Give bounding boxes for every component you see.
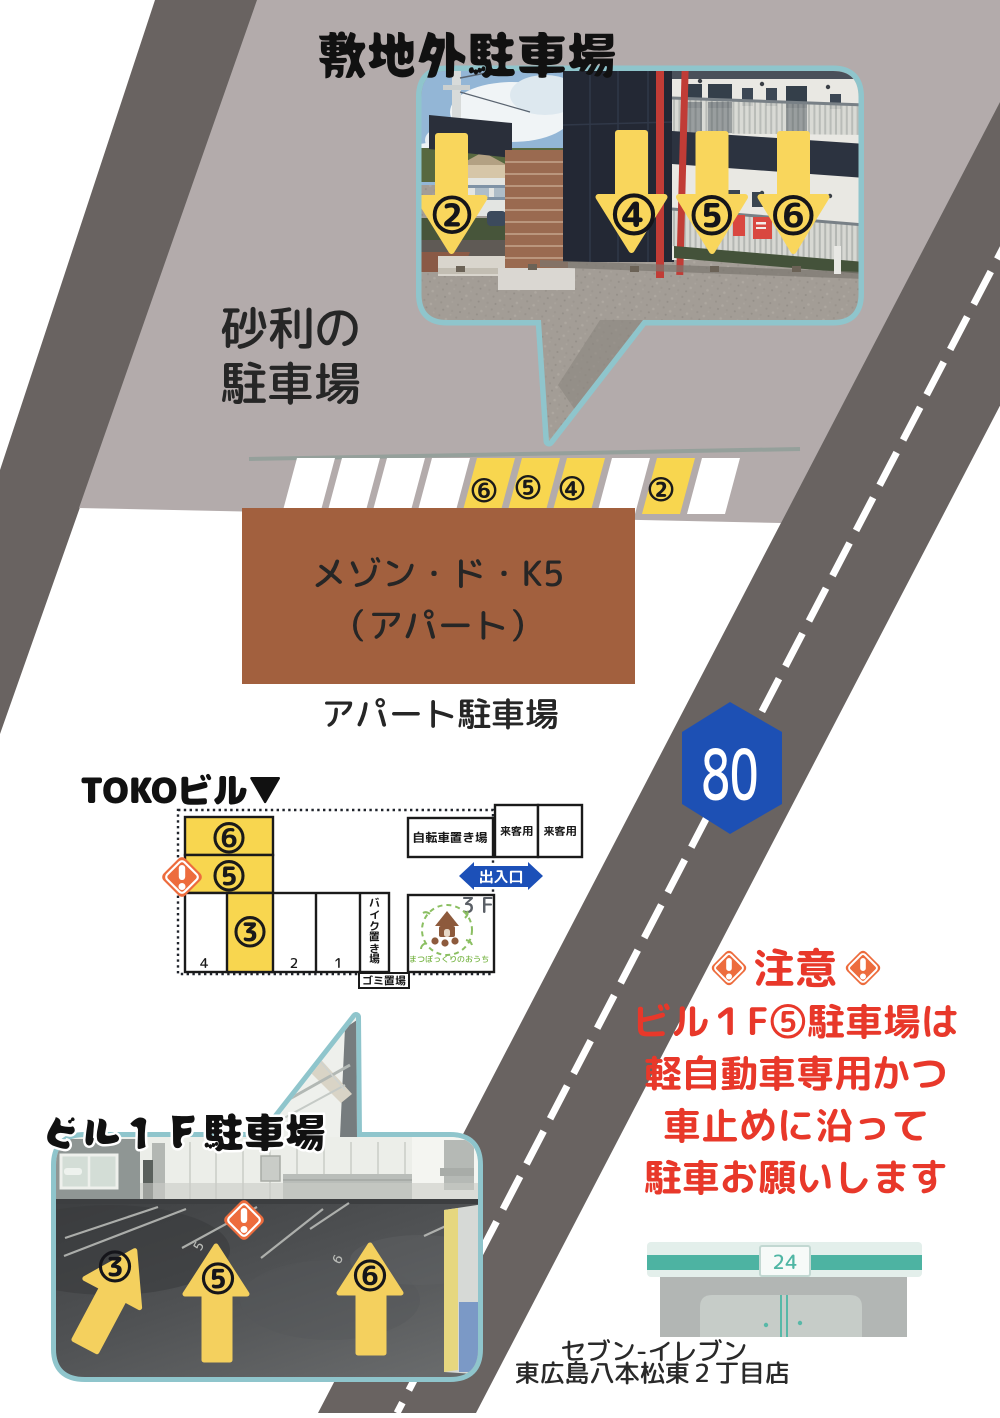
svg-text:敷地外駐車場: 敷地外駐車場 (317, 17, 617, 89)
svg-text:ゴミ置場: ゴミ置場 (362, 973, 406, 989)
svg-text:⑤: ⑤ (690, 185, 734, 246)
svg-text:軽自動車専用かつ: 軽自動車専用かつ (644, 1047, 948, 1100)
svg-text:来客用: 来客用 (500, 823, 533, 839)
svg-text:バイク置き場: バイク置き場 (367, 897, 383, 964)
svg-text:駐車お願いします: 駐車お願いします (644, 1151, 948, 1204)
svg-text:駐車場: 駐車場 (220, 350, 361, 416)
svg-text:注意: 注意 (753, 939, 837, 997)
svg-text:車止めに沿って: 車止めに沿って (663, 1099, 929, 1152)
svg-text:出入口: 出入口 (478, 866, 523, 887)
svg-text:4: 4 (200, 954, 209, 973)
svg-text:⑥: ⑥ (772, 185, 816, 246)
svg-text:アパート駐車場: アパート駐車場 (321, 689, 559, 737)
svg-text:④: ④ (611, 182, 657, 246)
svg-text:③: ③ (233, 907, 267, 955)
svg-text:⑤: ⑤ (515, 468, 542, 506)
svg-text:1: 1 (334, 954, 343, 973)
svg-text:ビル１Ｆ駐車場: ビル１Ｆ駐車場 (39, 1100, 326, 1160)
svg-text:⑥: ⑥ (471, 471, 498, 509)
svg-text:⑤: ⑤ (212, 851, 246, 899)
svg-text:まつぼっくりのおうち: まつぼっくりのおうち (409, 953, 489, 965)
svg-text:2: 2 (290, 954, 299, 973)
svg-text:東広島八本松東２丁目店: 東広島八本松東２丁目店 (514, 1355, 789, 1390)
svg-text:来客用: 来客用 (544, 823, 577, 839)
svg-text:②: ② (431, 186, 473, 244)
svg-text:ビル１F⑤駐車場は: ビル１F⑤駐車場は (633, 995, 959, 1048)
svg-text:（アパート）: （アパート） (333, 601, 543, 650)
svg-text:⑥: ⑥ (352, 1251, 387, 1300)
svg-text:③: ③ (97, 1242, 132, 1291)
svg-text:TOKOビル▼: TOKOビル▼ (80, 766, 282, 815)
svg-text:②: ② (648, 470, 675, 508)
svg-text:⑤: ⑤ (200, 1254, 235, 1303)
svg-text:自転車置き場: 自転車置き場 (412, 829, 487, 846)
svg-text:24: 24 (772, 1248, 797, 1276)
svg-text:80: 80 (702, 726, 759, 823)
svg-text:④: ④ (559, 469, 586, 507)
svg-text:メゾン・ド・K5: メゾン・ド・K5 (311, 549, 564, 598)
